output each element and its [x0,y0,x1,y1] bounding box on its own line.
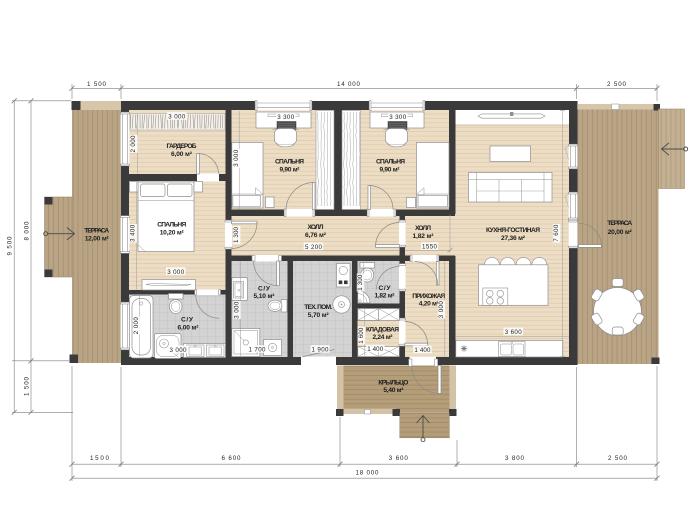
svg-text:1 700: 1 700 [249,347,267,354]
svg-text:2 500: 2 500 [608,455,628,462]
svg-text:ПРИХОЖАЯ: ПРИХОЖАЯ [412,293,445,300]
svg-text:1550: 1550 [422,244,438,251]
svg-text:5,70 м²: 5,70 м² [308,312,330,319]
svg-text:С/У: С/У [181,316,194,323]
svg-text:1 400: 1 400 [367,346,384,353]
svg-text:5,40 м²: 5,40 м² [383,387,404,394]
svg-text:1500: 1500 [90,455,110,462]
svg-text:1 900: 1 900 [312,347,330,354]
svg-text:С/У: С/У [379,285,392,292]
svg-text:1,82 м²: 1,82 м² [375,292,396,299]
svg-text:ТЕХ. ПОМ.: ТЕХ. ПОМ. [304,304,332,311]
svg-text:КУХНЯ-ГОСТИНАЯ: КУХНЯ-ГОСТИНАЯ [486,227,540,234]
svg-text:2 000: 2 000 [130,135,137,153]
svg-text:ГАРДЕРОБ: ГАРДЕРОБ [167,143,197,150]
svg-text:1 300: 1 300 [233,226,240,243]
svg-text:2 000: 2 000 [133,317,140,335]
svg-text:14 000: 14 000 [337,81,361,88]
svg-text:8 000: 8 000 [23,221,30,241]
svg-text:5,10 м²: 5,10 м² [254,293,276,300]
svg-text:3 000: 3 000 [233,301,240,319]
svg-text:3 600: 3 600 [505,329,523,336]
svg-text:3 000: 3 000 [167,269,185,276]
svg-text:27,36 м²: 27,36 м² [501,235,526,242]
svg-text:10,20 м²: 10,20 м² [160,229,185,236]
svg-text:2,24 м²: 2,24 м² [373,334,394,341]
svg-text:ХОЛЛ: ХОЛЛ [308,224,324,231]
svg-text:3 300: 3 300 [277,114,295,121]
svg-text:ТЕРРАСА: ТЕРРАСА [84,227,109,234]
svg-text:1 500: 1 500 [23,376,30,396]
svg-text:12,00 м²: 12,00 м² [85,235,110,242]
svg-text:1 300: 1 300 [357,274,364,291]
svg-text:6,76 м²: 6,76 м² [305,232,327,239]
svg-text:20,00 м²: 20,00 м² [608,229,633,236]
svg-text:9,90 м²: 9,90 м² [280,166,301,173]
svg-text:3 000: 3 000 [233,149,240,167]
svg-text:ХОЛЛ: ХОЛЛ [415,225,431,232]
svg-text:9 500: 9 500 [7,236,14,256]
svg-text:С/У: С/У [258,285,271,292]
svg-text:18 000: 18 000 [356,469,380,476]
svg-text:3 000: 3 000 [168,114,186,121]
svg-text:ТЕРРАСА: ТЕРРАСА [607,220,632,227]
svg-text:КЛАДОВАЯ: КЛАДОВАЯ [366,326,399,333]
svg-text:4,20 м²: 4,20 м² [419,301,440,308]
svg-text:3 000: 3 000 [170,347,188,354]
svg-text:1 400: 1 400 [414,347,431,354]
svg-text:КРЫЛЬЦО: КРЫЛЬЦО [378,380,408,387]
svg-text:9,90 м²: 9,90 м² [380,166,401,173]
svg-text:СПАЛЬНЯ: СПАЛЬНЯ [275,158,304,165]
svg-text:6 600: 6 600 [222,455,242,462]
svg-text:3 300: 3 300 [389,114,407,121]
svg-text:1 500: 1 500 [87,81,107,88]
svg-text:3 400: 3 400 [130,224,137,242]
svg-text:7 600: 7 600 [553,224,560,242]
svg-text:5 200: 5 200 [305,244,323,251]
svg-text:2 500: 2 500 [607,81,627,88]
svg-text:1 600: 1 600 [358,327,365,344]
svg-text:3 000: 3 000 [438,301,445,319]
svg-text:1,82 м²: 1,82 м² [413,233,435,240]
svg-text:6,00 м²: 6,00 м² [171,151,193,158]
svg-text:СПАЛЬНЯ: СПАЛЬНЯ [157,221,186,228]
svg-text:СПАЛЬНЯ: СПАЛЬНЯ [376,158,405,165]
svg-text:6,00 м²: 6,00 м² [178,324,200,331]
svg-text:3 600: 3 600 [389,455,409,462]
svg-text:3 800: 3 800 [505,455,525,462]
